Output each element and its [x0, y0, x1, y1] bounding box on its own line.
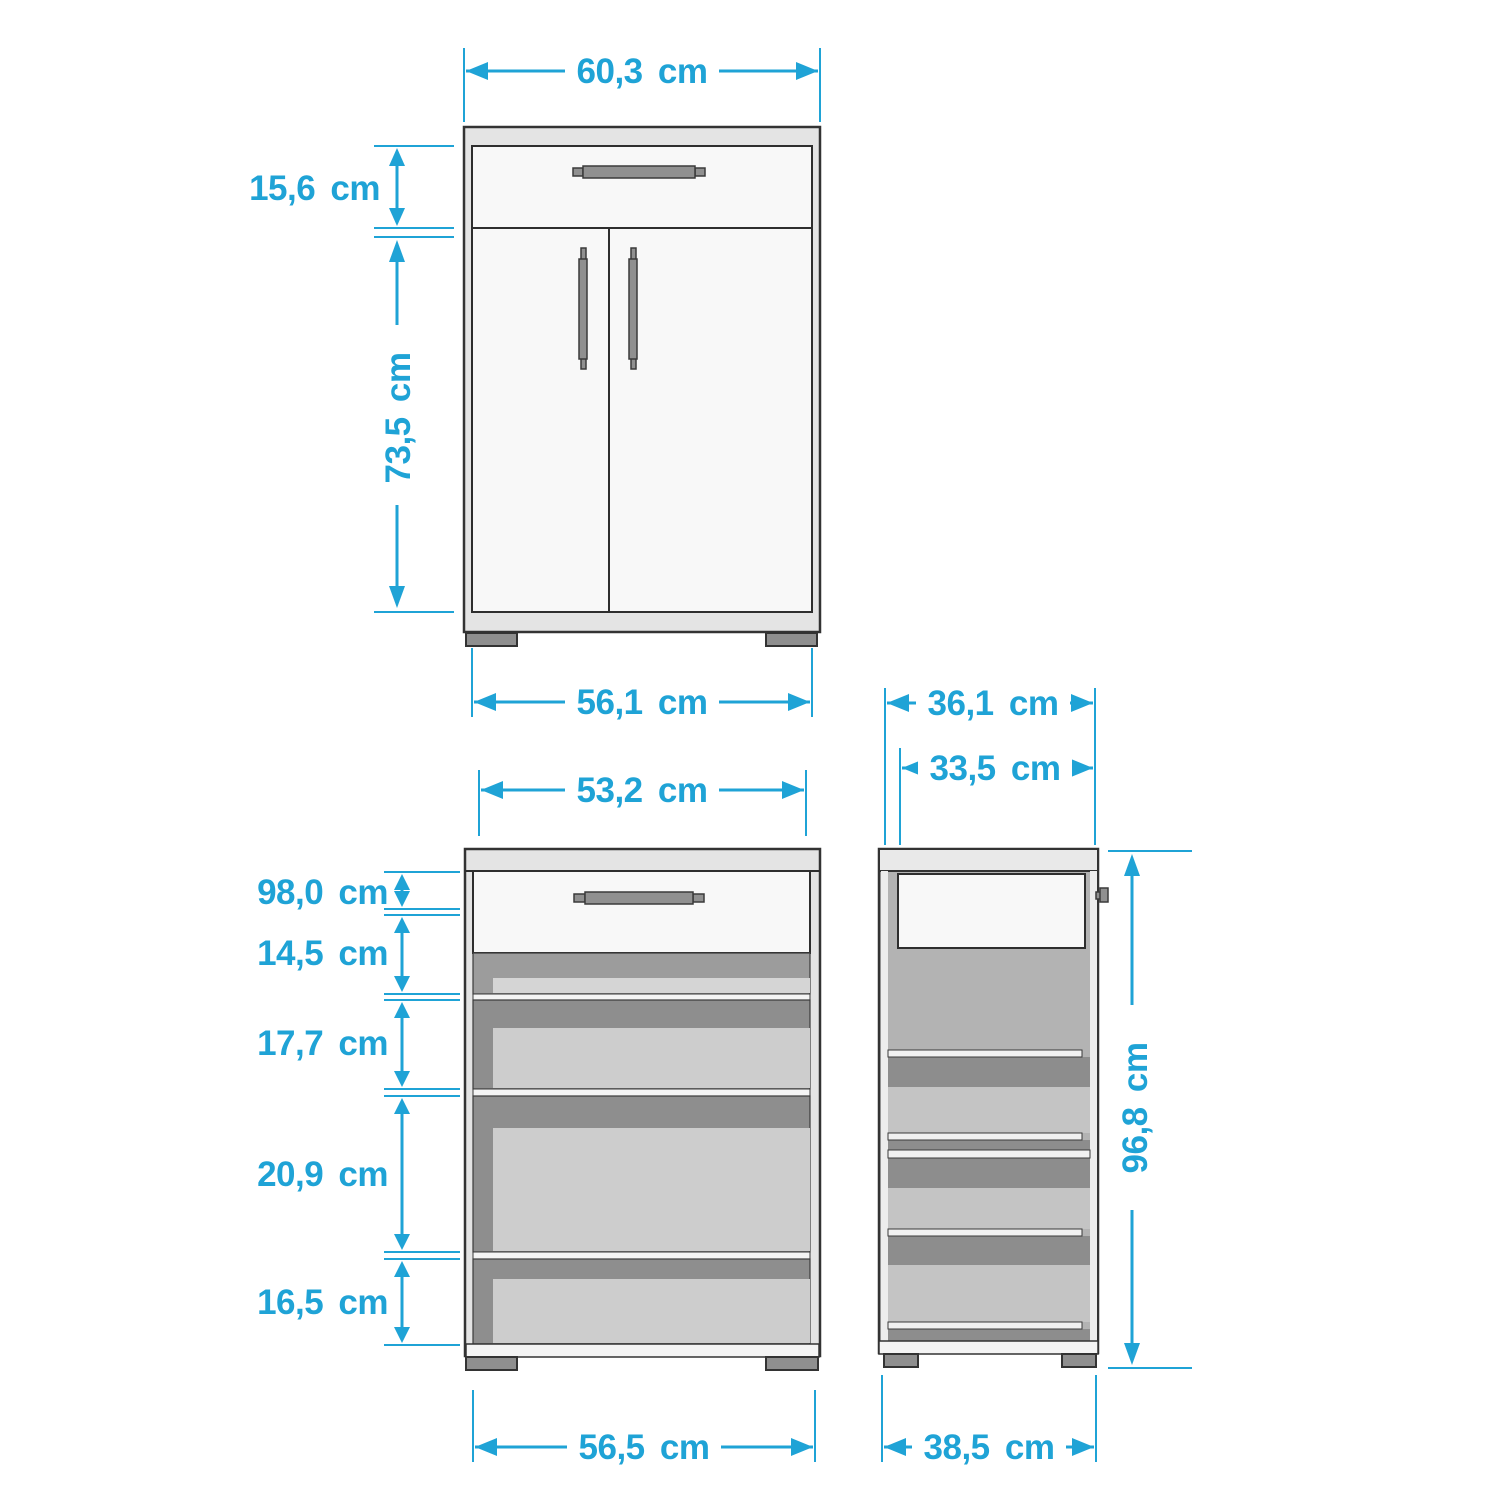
shelf-edge — [888, 1229, 1082, 1236]
handle-bar — [629, 259, 637, 359]
handle-cap — [581, 248, 586, 260]
dim-open-section-stack: 98,0 cm 14,5 cm 17,7 cm 20,9 cm 16,5 cm — [257, 872, 460, 1345]
handle-bar — [579, 259, 587, 359]
drawer-handle — [574, 892, 704, 904]
side-view — [879, 849, 1108, 1367]
handle-cap — [631, 248, 636, 260]
handle-bar — [583, 166, 695, 178]
dim-front-top-width: 60,3 cm — [464, 48, 820, 122]
drawer-front — [472, 146, 812, 228]
handle-cap — [573, 168, 583, 176]
dim-label-side-height: 96,8 cm — [1116, 1043, 1155, 1174]
band — [888, 1188, 1090, 1229]
dim-label-section-4: 20,9 cm — [257, 1155, 388, 1194]
shelf-edge — [888, 1150, 1090, 1158]
dim-front-base-width: 56,1 cm — [472, 648, 812, 722]
dim-label-drawer-height: 15,6 cm — [249, 169, 380, 208]
handle-cap — [693, 894, 704, 902]
compartment-back — [493, 1279, 810, 1343]
dim-front-drawer-height: 15,6 cm — [249, 146, 454, 228]
open-compartments — [473, 953, 810, 1344]
shelf — [473, 994, 810, 1000]
shelf — [473, 1252, 810, 1259]
band — [888, 1158, 1090, 1188]
dim-label-side-top-depth: 36,1 cm — [928, 684, 1059, 723]
dim-label-base-width: 56,1 cm — [577, 683, 708, 722]
diagram-canvas: 60,3 cm 15,6 cm 73,5 cm 56,1 cm — [0, 0, 1500, 1500]
shelf-edge — [888, 1050, 1082, 1057]
front-open-view — [465, 849, 820, 1370]
drawer-front — [473, 871, 810, 953]
cabinet-foot — [466, 1357, 517, 1370]
shelf — [473, 1089, 810, 1096]
band — [888, 1265, 1090, 1322]
plinth — [879, 1341, 1098, 1354]
dim-side-inner-depth: 33,5 cm — [900, 748, 1093, 845]
dim-label-section-3: 17,7 cm — [257, 1024, 388, 1063]
side-bands — [888, 1050, 1090, 1342]
dim-open-base-width: 56,5 cm — [473, 1390, 815, 1467]
compartment-back — [493, 1028, 810, 1088]
dim-side-height: 96,8 cm — [1108, 851, 1192, 1368]
knob-cap — [1100, 888, 1108, 902]
plinth — [466, 1344, 819, 1357]
dim-label-section-2: 14,5 cm — [257, 934, 388, 973]
handle-cap — [574, 894, 585, 902]
top-strip — [879, 849, 1098, 871]
dim-label-top-width: 60,3 cm — [577, 52, 708, 91]
cabinet-foot — [766, 1357, 818, 1370]
dim-side-base-depth: 38,5 cm — [882, 1375, 1096, 1467]
right-door-handle — [629, 248, 637, 369]
dim-open-top-width: 53,2 cm — [479, 770, 806, 836]
band — [888, 1329, 1090, 1342]
back-edge — [1090, 871, 1097, 1342]
dim-label-side-inner-depth: 33,5 cm — [930, 749, 1061, 788]
dim-label-door-height: 73,5 cm — [379, 353, 418, 484]
compartment-back — [493, 978, 810, 993]
front-view — [464, 127, 820, 646]
cabinet-foot — [884, 1354, 918, 1367]
dim-front-door-height: 73,5 cm — [374, 237, 454, 612]
left-door-handle — [579, 248, 587, 369]
cabinet-foot — [1062, 1354, 1096, 1367]
band — [888, 1087, 1090, 1133]
compartment-back — [493, 1128, 810, 1251]
drawer-handle — [573, 166, 705, 178]
doors-panel — [472, 228, 812, 612]
band — [888, 1140, 1090, 1150]
dim-label-side-base-depth: 38,5 cm — [924, 1428, 1055, 1467]
handle-cap — [695, 168, 705, 176]
band — [888, 1236, 1090, 1265]
front-edge — [881, 871, 888, 1342]
dim-label-open-top-width: 53,2 cm — [577, 771, 708, 810]
band — [888, 1057, 1090, 1087]
drawer-side — [898, 874, 1085, 948]
shelf-edge — [888, 1133, 1082, 1140]
shelf-edge — [888, 1322, 1082, 1329]
cabinet-foot — [766, 633, 817, 646]
cabinet-foot — [466, 633, 517, 646]
dim-label-section-5: 16,5 cm — [257, 1283, 388, 1322]
dim-label-open-base-width: 56,5 cm — [579, 1428, 710, 1467]
cabinet-dimension-diagram: 60,3 cm 15,6 cm 73,5 cm 56,1 cm — [0, 0, 1500, 1500]
dim-label-section-1: 98,0 cm — [257, 873, 388, 912]
handle-bar — [585, 892, 693, 904]
